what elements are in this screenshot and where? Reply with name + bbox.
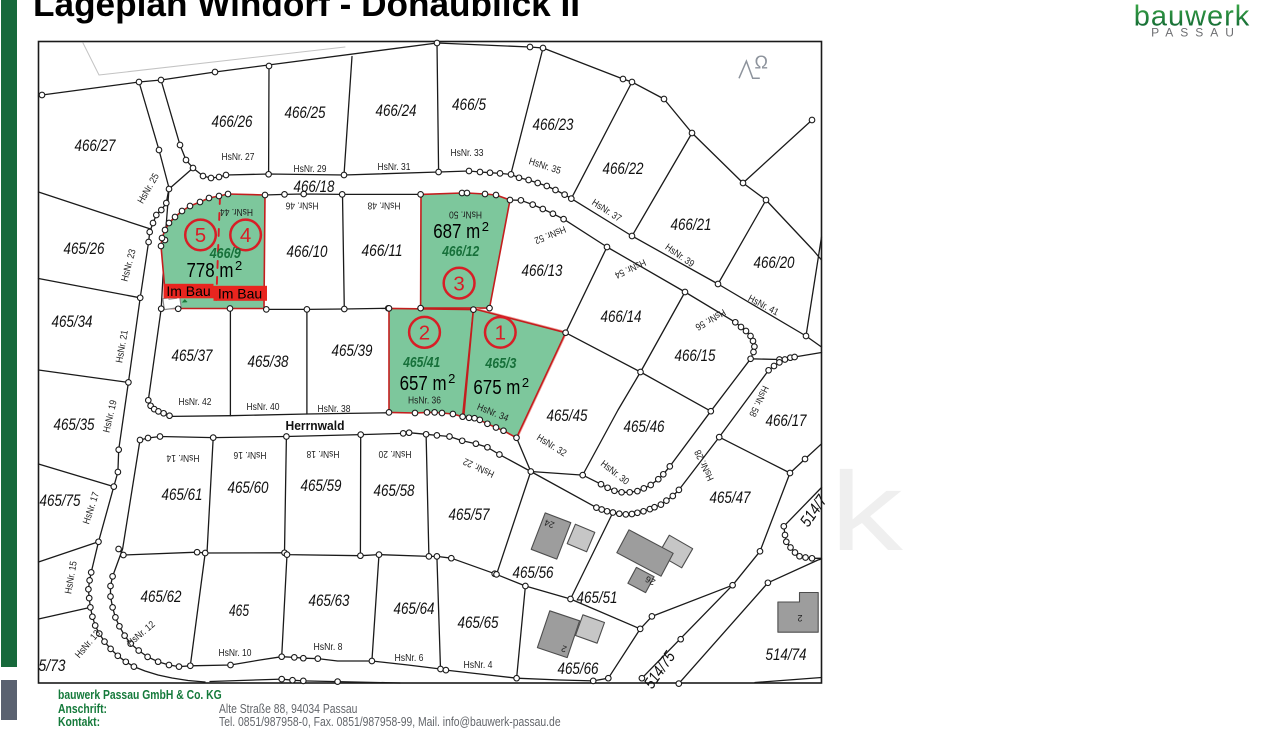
svg-text:465/56: 465/56	[513, 564, 555, 582]
svg-text:465/58: 465/58	[374, 482, 416, 500]
svg-text:657 m: 657 m	[400, 373, 447, 395]
svg-text:465/38: 465/38	[248, 353, 290, 371]
svg-text:465/65: 465/65	[458, 614, 500, 632]
svg-text:2: 2	[522, 375, 529, 390]
svg-text:HsNr. 18: HsNr. 18	[306, 448, 339, 459]
svg-text:HsNr. 38: HsNr. 38	[318, 404, 351, 415]
svg-text:465/61: 465/61	[162, 486, 203, 504]
svg-text:465/46: 465/46	[624, 418, 666, 436]
svg-text:465/35: 465/35	[54, 416, 96, 434]
svg-text:HsNr. 6: HsNr. 6	[395, 653, 424, 664]
svg-text:466/26: 466/26	[212, 113, 254, 131]
svg-text:465/75: 465/75	[40, 492, 82, 510]
svg-text:HsNr. 44: HsNr. 44	[220, 206, 253, 217]
svg-text:466/5: 466/5	[452, 96, 487, 114]
svg-text:HsNr. 50: HsNr. 50	[449, 208, 482, 219]
svg-text:HsNr. 33: HsNr. 33	[451, 148, 484, 159]
svg-text:HsNr. 8: HsNr. 8	[314, 642, 343, 653]
svg-text:HsNr. 10: HsNr. 10	[219, 648, 252, 659]
svg-text:466/10: 466/10	[287, 243, 329, 261]
svg-text:HsNr. 4: HsNr. 4	[464, 660, 493, 671]
svg-text:HsNr. 40: HsNr. 40	[247, 402, 280, 413]
svg-text:Im Bau: Im Bau	[166, 283, 210, 299]
svg-text:465/3: 465/3	[485, 356, 517, 372]
svg-text:465/62: 465/62	[141, 588, 182, 606]
svg-text:HsNr. 14: HsNr. 14	[166, 452, 199, 463]
svg-text:HsNr. 36: HsNr. 36	[408, 396, 441, 407]
svg-text:466/25: 466/25	[285, 104, 327, 122]
svg-text:465/39: 465/39	[332, 342, 373, 360]
svg-text:466/18: 466/18	[294, 178, 336, 196]
svg-text:465/63: 465/63	[309, 592, 351, 610]
svg-text:Herrnwald: Herrnwald	[286, 419, 345, 433]
svg-text:HsNr. 42: HsNr. 42	[179, 397, 212, 408]
svg-text:675 m: 675 m	[473, 377, 520, 399]
svg-text:466/22: 466/22	[603, 160, 644, 178]
svg-text:Im Bau: Im Bau	[218, 285, 262, 301]
svg-text:466/24: 466/24	[376, 102, 417, 120]
svg-text:465/57: 465/57	[449, 506, 491, 524]
svg-text:465/51: 465/51	[577, 589, 618, 607]
svg-text:Ω: Ω	[755, 53, 768, 73]
svg-text:2: 2	[419, 322, 430, 345]
svg-text:HsNr. 29: HsNr. 29	[294, 164, 327, 175]
svg-text:5/73: 5/73	[39, 657, 67, 675]
svg-text:465/26: 465/26	[64, 240, 106, 258]
svg-text:465/64: 465/64	[394, 600, 435, 618]
svg-text:2: 2	[235, 258, 242, 273]
svg-text:HsNr. 31: HsNr. 31	[378, 162, 411, 173]
svg-text:HsNr. 48: HsNr. 48	[367, 200, 400, 211]
svg-text:466/12: 466/12	[441, 244, 479, 260]
svg-text:466/14: 466/14	[601, 308, 642, 326]
svg-text:3: 3	[453, 272, 464, 295]
svg-text:4: 4	[240, 224, 251, 247]
svg-text:687 m: 687 m	[433, 221, 480, 243]
svg-text:2: 2	[482, 219, 489, 234]
svg-text:466/13: 466/13	[522, 262, 564, 280]
svg-text:466/17: 466/17	[766, 412, 808, 430]
svg-text:5: 5	[195, 224, 206, 247]
svg-text:778 m: 778 m	[187, 260, 234, 282]
svg-text:465: 465	[229, 602, 250, 620]
svg-text:514/74: 514/74	[766, 646, 807, 664]
svg-text:465/60: 465/60	[228, 479, 270, 497]
svg-text:HsNr. 16: HsNr. 16	[233, 449, 266, 460]
svg-text:466/23: 466/23	[533, 116, 575, 134]
svg-text:465/66: 465/66	[558, 660, 600, 678]
svg-text:HsNr. 46: HsNr. 46	[285, 199, 318, 210]
svg-text:2: 2	[797, 613, 802, 623]
svg-text:465/37: 465/37	[172, 347, 214, 365]
svg-text:465/41: 465/41	[402, 355, 440, 371]
svg-text:466/27: 466/27	[75, 137, 117, 155]
svg-text:HsNr. 27: HsNr. 27	[222, 152, 255, 163]
svg-text:465/45: 465/45	[547, 407, 589, 425]
svg-text:2: 2	[448, 371, 455, 386]
svg-text:HsNr. 20: HsNr. 20	[378, 448, 411, 459]
svg-text:465/59: 465/59	[301, 477, 342, 495]
svg-text:1: 1	[495, 322, 506, 345]
svg-text:465/34: 465/34	[52, 313, 93, 331]
svg-text:465/47: 465/47	[710, 489, 752, 507]
svg-text:466/20: 466/20	[754, 254, 796, 272]
svg-text:466/11: 466/11	[362, 242, 403, 260]
svg-text:466/15: 466/15	[675, 347, 717, 365]
svg-text:466/21: 466/21	[671, 216, 712, 234]
